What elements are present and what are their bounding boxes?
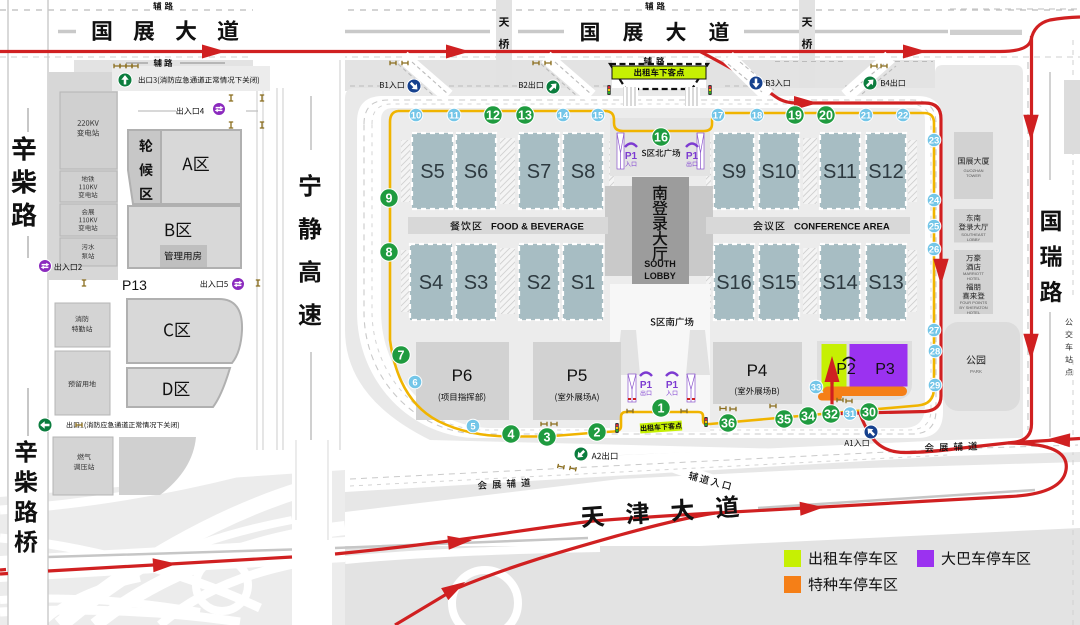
svg-text:20: 20	[819, 109, 833, 123]
svg-text:CONFERENCE AREA: CONFERENCE AREA	[794, 222, 890, 233]
svg-text:27: 27	[929, 325, 940, 336]
svg-text:P1: P1	[640, 380, 653, 391]
svg-text:32: 32	[824, 408, 838, 422]
svg-text:18: 18	[752, 110, 763, 121]
svg-text:25: 25	[929, 221, 940, 232]
svg-text:LOBBY: LOBBY	[967, 237, 981, 242]
svg-text:HOTEL: HOTEL	[967, 276, 981, 281]
svg-text:9: 9	[386, 192, 393, 206]
svg-text:S13: S13	[868, 272, 904, 294]
svg-text:P3: P3	[875, 361, 895, 378]
svg-text:13: 13	[518, 109, 532, 123]
svg-text:P1: P1	[686, 151, 699, 162]
svg-text:S14: S14	[822, 272, 858, 294]
svg-text:31: 31	[845, 409, 856, 420]
svg-text:S3: S3	[464, 272, 488, 294]
svg-text:S9: S9	[722, 161, 746, 183]
svg-text:7: 7	[398, 349, 405, 363]
svg-text:29: 29	[930, 380, 941, 391]
svg-text:P1: P1	[666, 380, 679, 391]
svg-text:S8: S8	[571, 161, 595, 183]
svg-text:14: 14	[558, 110, 569, 121]
svg-text:S7: S7	[527, 161, 551, 183]
svg-text:8: 8	[386, 246, 393, 260]
svg-text:S15: S15	[761, 272, 797, 294]
svg-text:17: 17	[713, 110, 724, 121]
svg-text:24: 24	[929, 195, 940, 206]
svg-text:6: 6	[412, 377, 417, 388]
svg-text:30: 30	[862, 406, 876, 420]
svg-text:S2: S2	[527, 272, 551, 294]
svg-text:34: 34	[801, 410, 815, 424]
svg-text:FOOD & BEVERAGE: FOOD & BEVERAGE	[491, 222, 584, 233]
svg-text:P13: P13	[122, 277, 147, 293]
svg-text:S16: S16	[716, 272, 752, 294]
svg-text:PARK: PARK	[970, 369, 982, 374]
svg-text:21: 21	[861, 110, 872, 121]
svg-text:P2: P2	[836, 361, 856, 378]
svg-text:TOWER: TOWER	[966, 173, 981, 178]
svg-text:S1: S1	[571, 272, 595, 294]
svg-text:P5: P5	[567, 366, 588, 385]
svg-text:P4: P4	[747, 361, 768, 380]
svg-text:36: 36	[721, 417, 735, 431]
svg-text:P6: P6	[452, 366, 473, 385]
svg-text:HOTEL: HOTEL	[967, 310, 981, 315]
svg-text:S10: S10	[761, 161, 797, 183]
svg-text:10: 10	[411, 110, 422, 121]
svg-text:11: 11	[449, 110, 460, 121]
svg-text:S5: S5	[420, 161, 444, 183]
svg-text:S12: S12	[868, 161, 904, 183]
svg-text:19: 19	[788, 109, 802, 123]
svg-text:4: 4	[508, 428, 515, 442]
svg-text:2: 2	[594, 426, 601, 440]
svg-text:LOBBY: LOBBY	[644, 271, 676, 281]
svg-text:S6: S6	[464, 161, 488, 183]
svg-text:35: 35	[777, 413, 791, 427]
svg-text:16: 16	[654, 131, 668, 145]
svg-text:15: 15	[593, 110, 604, 121]
svg-text:P1: P1	[625, 151, 638, 162]
svg-text:5: 5	[470, 421, 476, 432]
svg-text:26: 26	[929, 244, 940, 255]
svg-text:33: 33	[811, 382, 822, 393]
svg-text:12: 12	[486, 109, 500, 123]
svg-text:S4: S4	[419, 272, 443, 294]
svg-text:28: 28	[930, 346, 941, 357]
svg-text:1: 1	[658, 402, 665, 416]
svg-text:S11: S11	[823, 161, 857, 183]
svg-text:22: 22	[898, 110, 909, 121]
svg-text:23: 23	[929, 135, 940, 146]
svg-text:3: 3	[544, 431, 551, 445]
svg-text:SOUTH: SOUTH	[644, 259, 676, 269]
